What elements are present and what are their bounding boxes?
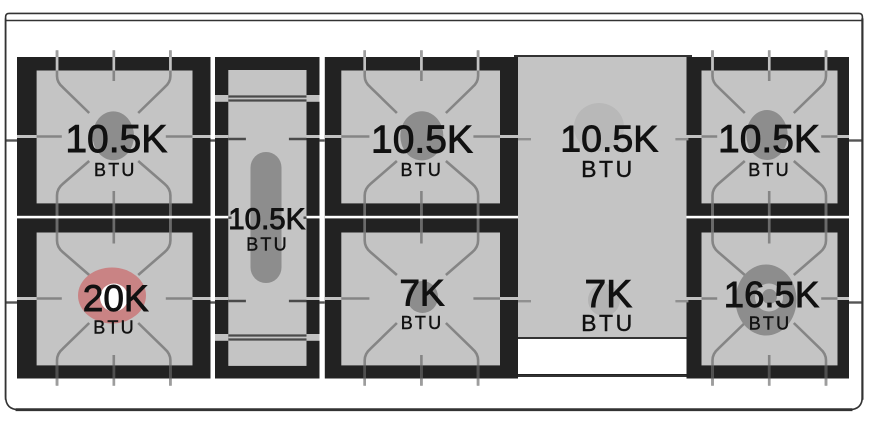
svg-text:10.5K: 10.5K	[718, 118, 820, 161]
svg-text:BTU: BTU	[246, 234, 289, 254]
svg-text:10.5K: 10.5K	[65, 118, 167, 161]
svg-text:BTU: BTU	[748, 160, 791, 180]
svg-text:7K: 7K	[399, 273, 445, 314]
svg-text:BTU: BTU	[401, 313, 444, 333]
svg-text:10.5K: 10.5K	[560, 118, 658, 160]
svg-text:16.5K: 16.5K	[724, 274, 819, 315]
svg-text:10.5K: 10.5K	[371, 119, 473, 162]
svg-text:BTU: BTU	[749, 313, 792, 333]
svg-text:20K: 20K	[83, 278, 149, 319]
svg-text:BTU: BTU	[581, 156, 635, 182]
svg-text:BTU: BTU	[93, 317, 136, 337]
svg-text:10.5K: 10.5K	[228, 203, 305, 236]
svg-text:BTU: BTU	[400, 160, 443, 180]
svg-text:BTU: BTU	[581, 310, 635, 336]
svg-text:BTU: BTU	[94, 160, 137, 180]
